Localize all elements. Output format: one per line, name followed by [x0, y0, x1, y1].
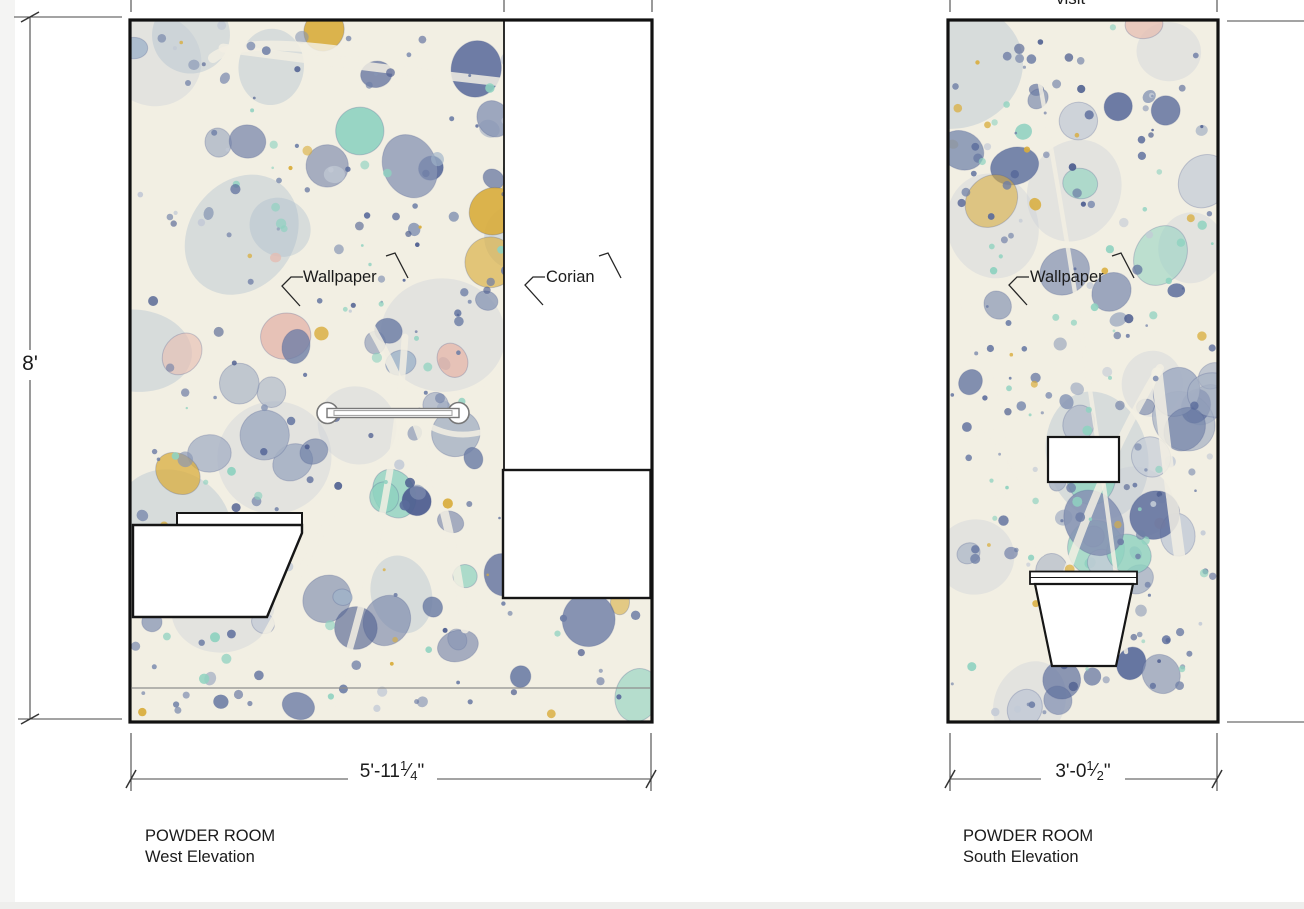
- marble-blob: [405, 478, 415, 488]
- marble-blob: [1042, 710, 1046, 714]
- marble-blob: [596, 677, 604, 685]
- marble-blob: [211, 130, 217, 136]
- marble-blob: [1085, 667, 1089, 671]
- drawing-title-south: POWDER ROOM South Elevation: [963, 826, 1093, 868]
- marble-blob: [1089, 518, 1092, 521]
- marble-blob: [1200, 125, 1203, 128]
- marble-blob: [1029, 701, 1036, 708]
- marble-blob: [1003, 181, 1012, 190]
- marble-blob: [486, 574, 489, 577]
- marble-blob: [990, 267, 997, 274]
- marble-blob: [1137, 632, 1143, 638]
- marble-blob: [262, 46, 271, 55]
- marble-blob: [227, 630, 236, 639]
- marble-blob: [352, 660, 362, 670]
- marble-blob: [1207, 211, 1212, 216]
- drawing-title-west: POWDER ROOM West Elevation: [145, 826, 275, 868]
- marble-blob: [1086, 407, 1092, 413]
- marble-blob: [971, 545, 979, 553]
- marble-blob: [1072, 497, 1082, 507]
- marble-blob: [366, 82, 373, 89]
- marble-blob: [1193, 53, 1199, 59]
- drawing-title-west-view: West Elevation: [145, 847, 275, 868]
- marble-blob: [173, 46, 177, 50]
- marble-blob: [403, 279, 406, 282]
- marble-blob: [1075, 512, 1085, 522]
- marble-blob: [423, 363, 432, 372]
- marble-blob: [1176, 628, 1184, 636]
- marble-blob: [173, 701, 179, 707]
- marble-blob: [1175, 681, 1184, 690]
- marble-blob: [261, 404, 268, 411]
- marble-blob: [987, 543, 991, 547]
- marble-blob: [379, 301, 384, 306]
- marble-blob: [1001, 236, 1008, 243]
- marble-blob: [1004, 408, 1011, 415]
- marble-blob: [1157, 659, 1161, 663]
- clipped-text-top: visit: [1056, 0, 1085, 9]
- marble-blob: [400, 500, 410, 510]
- marble-blob: [457, 314, 460, 317]
- marble-blob: [1014, 548, 1019, 553]
- marble-blob: [449, 116, 454, 121]
- marble-blob: [260, 448, 267, 455]
- marble-blob: [1032, 498, 1039, 505]
- marble-blob: [475, 124, 478, 127]
- marble-blob: [1003, 101, 1010, 108]
- marble-blob: [1038, 39, 1044, 45]
- marble-blob: [345, 167, 350, 172]
- toilet-bowl: [1035, 584, 1133, 666]
- marble-blob: [281, 225, 288, 232]
- marble-blob: [351, 303, 356, 308]
- marble-blob: [1153, 376, 1159, 382]
- marble-blob: [1126, 334, 1130, 338]
- marble-blob: [951, 682, 954, 685]
- marble-blob: [578, 649, 585, 656]
- marble-blob: [422, 170, 429, 177]
- marble-blob: [1132, 265, 1142, 275]
- marble-blob: [288, 166, 292, 170]
- marble-blob: [179, 41, 183, 45]
- marble-blob: [232, 503, 241, 512]
- marble-blob: [487, 278, 495, 286]
- marble-blob: [1029, 413, 1032, 416]
- marble-blob: [1031, 381, 1038, 388]
- marble-blob: [372, 353, 382, 363]
- marble-blob: [152, 449, 157, 454]
- marble-blob: [992, 516, 997, 521]
- marble-blob: [1044, 112, 1047, 115]
- marble-blob: [158, 34, 167, 43]
- flush-plate: [1048, 437, 1119, 482]
- marble-blob: [508, 611, 513, 616]
- marble-blob: [1177, 239, 1185, 247]
- marble-blob: [1069, 163, 1077, 171]
- marble-blob: [317, 298, 323, 304]
- marble-blob: [435, 393, 445, 403]
- marble-blob: [991, 119, 997, 125]
- marble-blob: [483, 287, 490, 294]
- marble-blob: [554, 631, 560, 637]
- marble-blob: [275, 507, 279, 511]
- marble-blob: [199, 674, 209, 684]
- marble-blob: [631, 611, 640, 620]
- marble-blob: [157, 458, 161, 462]
- drawing-title-south-room: POWDER ROOM: [963, 826, 1093, 847]
- marble-blob: [1141, 639, 1145, 643]
- drawing-title-west-room: POWDER ROOM: [145, 826, 275, 847]
- wallpaper-label-south: Wallpaper: [1030, 268, 1104, 287]
- marble-blob: [1145, 324, 1148, 327]
- marble-blob: [1024, 147, 1030, 153]
- marble-blob: [384, 480, 388, 484]
- marble-blob: [1138, 507, 1142, 511]
- marble-blob: [172, 452, 180, 460]
- marble-blob: [368, 263, 371, 266]
- marble-blob: [1179, 85, 1186, 92]
- marble-blob: [547, 709, 556, 718]
- marble-blob: [1108, 376, 1112, 380]
- marble-blob: [1023, 66, 1026, 69]
- marble-blob: [1006, 320, 1012, 326]
- dim-prefix: 5'-11: [360, 761, 400, 782]
- dim-suffix: ": [417, 761, 424, 782]
- marble-blob: [1010, 353, 1014, 357]
- marble-blob: [1003, 52, 1012, 61]
- marble-blob: [1028, 555, 1034, 561]
- marble-blob: [271, 167, 274, 170]
- marble-blob: [419, 36, 427, 44]
- marble-blob: [424, 391, 428, 395]
- marble-blob: [1011, 170, 1019, 178]
- marble-blob: [970, 554, 980, 564]
- dim-suffix: ": [1104, 761, 1111, 782]
- marble-blob: [277, 227, 280, 230]
- sink-counter: [177, 513, 302, 525]
- marble-blob: [485, 83, 494, 92]
- marble-blob: [349, 310, 352, 313]
- marble-blob: [295, 144, 299, 148]
- marble-blob: [334, 244, 344, 254]
- marble-blob: [965, 455, 972, 462]
- marble-blob: [971, 171, 977, 177]
- marble-blob: [415, 330, 418, 333]
- marble-blob: [373, 705, 380, 712]
- marble-blob: [1182, 287, 1184, 289]
- marble-blob: [328, 167, 334, 173]
- marble-blob: [1033, 467, 1038, 472]
- marble-blob: [328, 693, 334, 699]
- dim-denominator: 4: [410, 768, 417, 783]
- marble-blob: [1186, 651, 1192, 657]
- marble-blob: [390, 662, 394, 666]
- marble-blob: [1143, 105, 1149, 111]
- marble-blob: [1150, 683, 1156, 689]
- marble-blob: [394, 593, 398, 597]
- marble-blob: [1194, 489, 1197, 492]
- marble-blob: [998, 515, 1008, 525]
- marble-blob: [303, 146, 313, 156]
- marble-blob: [199, 640, 205, 646]
- marble-blob: [1088, 201, 1095, 208]
- marble-blob: [443, 498, 453, 508]
- marble-blob: [186, 407, 188, 409]
- marble-blob: [1065, 53, 1074, 62]
- marble-blob: [984, 122, 991, 129]
- marble-blob: [167, 214, 174, 221]
- marble-blob: [226, 148, 230, 152]
- marble-blob: [1113, 330, 1116, 333]
- marble-blob: [141, 691, 145, 695]
- marble-blob: [962, 188, 971, 197]
- marble-blob: [383, 169, 392, 178]
- marble-blob: [247, 701, 252, 706]
- marble-blob: [998, 453, 1001, 456]
- marble-blob: [181, 388, 189, 396]
- marble-blob: [1148, 594, 1151, 597]
- dim-denominator: 2: [1097, 768, 1104, 783]
- marble-blob: [460, 288, 468, 296]
- marble-blob: [1069, 682, 1078, 691]
- marble-blob: [1138, 136, 1146, 144]
- marble-blob: [1144, 468, 1147, 471]
- marble-blob: [1151, 95, 1154, 98]
- marble-blob: [1114, 521, 1121, 528]
- marble-blob: [174, 707, 181, 714]
- marble-blob: [339, 685, 348, 694]
- marble-blob: [232, 361, 237, 366]
- marble-blob: [1199, 622, 1203, 626]
- marble-blob: [982, 395, 987, 400]
- marble-blob: [1066, 483, 1076, 493]
- marble-blob: [468, 300, 472, 304]
- marble-blob: [1075, 133, 1080, 138]
- marble-blob: [415, 242, 420, 247]
- marble-blob: [412, 203, 418, 209]
- marble-blob: [294, 66, 300, 72]
- marble-blob: [1148, 132, 1154, 138]
- marble-blob: [1115, 401, 1125, 411]
- marble-blob: [202, 62, 206, 66]
- marble-blob: [466, 501, 472, 507]
- marble-blob: [166, 364, 174, 372]
- marble-blob: [250, 108, 254, 112]
- grab-bar-rail: [327, 409, 459, 418]
- marble-blob: [183, 692, 190, 699]
- marble-blob: [468, 699, 473, 704]
- marble-blob: [1022, 346, 1028, 352]
- marble-blob: [951, 393, 955, 397]
- marble-blob: [221, 654, 231, 664]
- marble-blob: [307, 476, 314, 483]
- marble-blob: [120, 37, 147, 58]
- marble-blob: [989, 479, 993, 483]
- marble-blob: [368, 433, 373, 438]
- marble-blob: [276, 178, 282, 184]
- marble-blob: [1155, 466, 1162, 473]
- marble-blob: [468, 74, 471, 77]
- marble-blob: [1106, 245, 1114, 253]
- marble-blob: [1149, 311, 1157, 319]
- marble-blob: [967, 662, 976, 671]
- marble-blob: [1005, 486, 1009, 490]
- marble-blob: [616, 694, 621, 699]
- drawing-title-south-view: South Elevation: [963, 847, 1093, 868]
- marble-blob: [386, 68, 395, 77]
- marble-blob: [1201, 530, 1206, 535]
- marble-blob: [979, 158, 986, 165]
- marble-blob: [560, 615, 567, 622]
- marble-blob: [303, 373, 307, 377]
- marble-blob: [1197, 331, 1206, 340]
- marble-blob: [234, 690, 243, 699]
- marble-blob: [962, 422, 972, 432]
- marble-blob: [1133, 483, 1138, 488]
- marble-blob: [1102, 367, 1112, 377]
- marble-blob: [449, 212, 459, 222]
- marble-blob: [364, 212, 370, 218]
- marble-blob: [1207, 453, 1213, 459]
- marble-blob: [1027, 54, 1037, 64]
- marble-blob: [374, 72, 378, 76]
- marble-blob: [148, 296, 158, 306]
- marble-blob: [1124, 484, 1130, 490]
- marble-blob: [185, 80, 191, 86]
- marble-blob: [1026, 563, 1030, 567]
- marble-blob: [1166, 638, 1171, 643]
- marble-blob: [163, 633, 171, 641]
- marble-blob: [1017, 401, 1027, 411]
- marble-blob: [989, 244, 995, 250]
- marble-blob: [1211, 242, 1214, 245]
- marble-blob: [456, 681, 460, 685]
- marble-blob: [414, 699, 419, 704]
- marble-blob: [1114, 332, 1122, 340]
- marble-blob: [1157, 169, 1163, 175]
- marble-blob: [254, 492, 262, 500]
- marble-blob: [1136, 530, 1146, 540]
- marble-blob: [254, 671, 264, 681]
- marble-blob: [198, 219, 205, 226]
- marble-blob: [1071, 320, 1077, 326]
- marble-blob: [511, 689, 517, 695]
- marble-blob: [456, 350, 461, 355]
- marble-blob: [378, 276, 385, 283]
- marble-blob: [1166, 278, 1172, 284]
- marble-blob: [1209, 573, 1216, 580]
- marble-blob: [1146, 231, 1153, 238]
- marble-blob: [270, 141, 278, 149]
- marble-blob: [419, 226, 422, 229]
- marble-blob: [247, 42, 256, 51]
- marble-blob: [219, 363, 259, 404]
- marble-blob: [1081, 202, 1086, 207]
- marble-blob: [1187, 214, 1195, 222]
- marble-blob: [443, 628, 448, 633]
- marble-blob: [227, 232, 232, 237]
- marble-blob: [975, 60, 979, 64]
- marble-blob: [325, 620, 335, 630]
- marble-blob: [360, 161, 369, 170]
- marble-blob: [1082, 426, 1092, 436]
- marble-blob: [405, 231, 411, 237]
- marble-blob: [152, 664, 157, 669]
- marble-blob: [988, 213, 995, 220]
- marble-blob: [1117, 539, 1124, 546]
- marble-blob: [383, 568, 386, 571]
- dim-prefix: 3'-0: [1055, 761, 1086, 782]
- marble-blob: [1043, 152, 1050, 159]
- marble-blob: [1009, 377, 1012, 380]
- marble-blob: [501, 601, 505, 605]
- marble-blob: [1135, 554, 1141, 560]
- marble-blob: [1014, 44, 1024, 54]
- marble-blob: [305, 444, 310, 449]
- marble-blob: [1131, 634, 1138, 641]
- marble-blob: [1019, 219, 1023, 223]
- marble-blob: [1091, 303, 1099, 311]
- marble-blob: [984, 143, 991, 150]
- marble-blob: [1014, 706, 1021, 713]
- marble-blob: [1077, 57, 1085, 65]
- marble-blob: [1124, 314, 1133, 323]
- marble-blob: [1006, 385, 1012, 391]
- marble-blob: [599, 669, 603, 673]
- marble-blob: [999, 254, 1003, 258]
- marble-blob: [1209, 344, 1216, 351]
- marble-blob: [1015, 54, 1024, 63]
- marble-blob: [248, 279, 254, 285]
- elevation-sheet: visit 8' Wallpaper Corian Wallpaper 5'-1…: [0, 0, 1304, 909]
- marble-blob: [987, 345, 994, 352]
- marble-blob: [1077, 85, 1085, 93]
- marble-blob: [991, 708, 999, 716]
- marble-blob: [227, 467, 236, 476]
- marble-blob: [407, 52, 412, 57]
- marble-blob: [131, 642, 140, 651]
- marble-blob: [171, 220, 177, 226]
- wallpaper-label-west: Wallpaper: [303, 268, 377, 287]
- marble-blob: [1145, 582, 1151, 588]
- marble-blob: [361, 244, 364, 247]
- marble-blob: [1015, 132, 1018, 135]
- marble-blob: [1052, 80, 1061, 89]
- marble-blob: [334, 482, 342, 490]
- marble-blob: [1200, 569, 1208, 577]
- marble-blob: [392, 637, 398, 643]
- marble-blob: [1151, 129, 1154, 132]
- corian-lower-cabinet: [503, 470, 651, 598]
- width-dimension-south: 3'-01⁄2": [1055, 758, 1110, 783]
- marble-blob: [253, 97, 256, 100]
- marble-blob: [974, 351, 978, 355]
- marble-blob: [1150, 501, 1156, 507]
- marble-blob: [343, 307, 348, 312]
- marble-blob: [454, 317, 464, 327]
- corian-panel: [504, 22, 651, 471]
- marble-blob: [174, 211, 178, 215]
- marble-blob: [1041, 411, 1044, 414]
- marble-blob: [958, 199, 966, 207]
- marble-blob: [1188, 468, 1195, 475]
- marble-blob: [210, 632, 220, 642]
- width-dimension-west: 5'-111⁄4": [360, 758, 424, 783]
- marble-blob: [1103, 676, 1110, 683]
- marble-blob: [305, 187, 310, 192]
- marble-blob: [257, 377, 286, 408]
- marble-blob: [1045, 392, 1052, 399]
